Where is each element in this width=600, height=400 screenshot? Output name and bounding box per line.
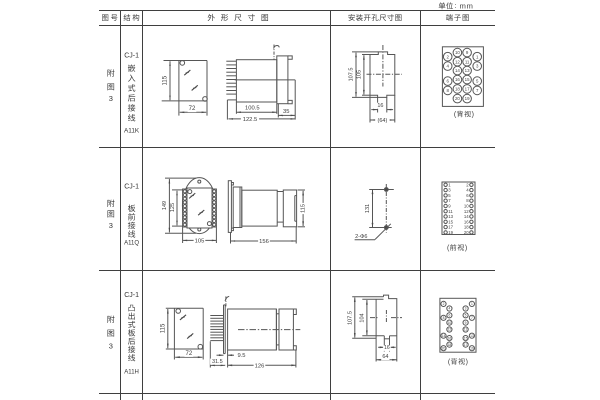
svg-text:105: 105 <box>195 238 205 244</box>
svg-text:72: 72 <box>189 106 196 112</box>
svg-text:13: 13 <box>465 68 470 73</box>
svg-text:3: 3 <box>448 188 451 193</box>
svg-text:14: 14 <box>464 214 469 219</box>
svg-text:CJ-1: CJ-1 <box>124 292 139 299</box>
svg-text:3: 3 <box>109 94 113 103</box>
svg-text:3: 3 <box>109 341 113 350</box>
svg-text:2: 2 <box>443 302 445 306</box>
svg-text:A11Q: A11Q <box>124 241 139 247</box>
svg-text:10: 10 <box>464 204 469 209</box>
svg-text:12: 12 <box>448 328 452 332</box>
svg-text:126: 126 <box>255 363 265 369</box>
svg-text:17: 17 <box>464 343 468 347</box>
svg-text:(64): (64) <box>378 118 388 124</box>
svg-text:64: 64 <box>382 354 388 360</box>
svg-text:107.5: 107.5 <box>349 68 355 82</box>
svg-text:2-Φ6: 2-Φ6 <box>355 234 367 240</box>
svg-text:131: 131 <box>365 204 371 213</box>
svg-text:3: 3 <box>465 307 467 311</box>
svg-text:9: 9 <box>465 321 467 325</box>
svg-text:6: 6 <box>446 79 449 84</box>
svg-text::: : <box>454 3 456 10</box>
svg-text:(: ( <box>448 359 451 366</box>
svg-text:8: 8 <box>446 88 449 93</box>
svg-text:115: 115 <box>300 204 306 213</box>
svg-text:149: 149 <box>162 201 168 210</box>
svg-text:): ) <box>472 112 474 119</box>
svg-text:122.5: 122.5 <box>243 117 258 123</box>
svg-text:2: 2 <box>466 182 469 187</box>
svg-text:31.5: 31.5 <box>212 359 223 365</box>
svg-text:100.5: 100.5 <box>245 105 260 111</box>
svg-text:19: 19 <box>470 346 474 350</box>
svg-text:156: 156 <box>259 239 269 245</box>
svg-text:16: 16 <box>464 219 469 224</box>
svg-text:16: 16 <box>448 336 452 340</box>
svg-text:72: 72 <box>186 351 193 357</box>
svg-text:4: 4 <box>446 64 449 69</box>
svg-text:(: ( <box>454 112 457 119</box>
svg-text:13: 13 <box>470 334 474 338</box>
svg-text:35: 35 <box>283 109 289 115</box>
svg-text:3: 3 <box>109 221 113 230</box>
svg-text:17: 17 <box>465 87 470 92</box>
svg-text:7: 7 <box>476 88 479 93</box>
svg-text:115: 115 <box>162 75 168 85</box>
svg-text:1: 1 <box>471 302 473 306</box>
svg-text:11: 11 <box>464 328 468 332</box>
svg-text:1: 1 <box>448 182 451 187</box>
svg-text:5: 5 <box>465 314 467 318</box>
svg-text:18: 18 <box>455 87 460 92</box>
svg-text:4: 4 <box>466 188 469 193</box>
svg-text:16: 16 <box>384 345 390 351</box>
svg-text:14: 14 <box>455 68 460 73</box>
svg-text:20: 20 <box>455 96 460 101</box>
svg-text:7: 7 <box>448 198 451 203</box>
svg-text:10: 10 <box>448 321 452 325</box>
svg-text:17: 17 <box>448 225 453 230</box>
svg-text:20: 20 <box>442 346 446 350</box>
svg-text:14: 14 <box>442 334 446 338</box>
svg-text:104: 104 <box>360 313 366 322</box>
svg-text:105: 105 <box>357 70 363 79</box>
svg-text:19: 19 <box>448 230 453 235</box>
svg-text:18: 18 <box>448 343 452 347</box>
svg-text:A11K: A11K <box>124 127 140 134</box>
svg-text:16: 16 <box>455 77 460 82</box>
svg-text:CJ-1: CJ-1 <box>124 53 139 60</box>
svg-text:2: 2 <box>446 54 449 59</box>
svg-text:107.5: 107.5 <box>347 311 353 325</box>
svg-text:12: 12 <box>455 59 460 64</box>
svg-text:11: 11 <box>465 59 470 64</box>
svg-text:4: 4 <box>448 307 450 311</box>
svg-text:6: 6 <box>466 193 469 198</box>
svg-text:15: 15 <box>464 336 468 340</box>
svg-text:(: ( <box>447 245 450 252</box>
svg-text:A11H: A11H <box>124 370 139 376</box>
svg-text:CJ-1: CJ-1 <box>124 184 139 191</box>
svg-text:): ) <box>466 359 468 366</box>
svg-text:9.5: 9.5 <box>237 353 245 359</box>
svg-text:6: 6 <box>448 314 450 318</box>
svg-text:15: 15 <box>465 77 470 82</box>
svg-text:10: 10 <box>455 50 460 55</box>
svg-text:8: 8 <box>443 316 445 320</box>
svg-text:5: 5 <box>476 79 479 84</box>
svg-text:19: 19 <box>465 96 470 101</box>
svg-text:20: 20 <box>464 230 469 235</box>
svg-text:9: 9 <box>466 50 469 55</box>
svg-text:5: 5 <box>448 193 451 198</box>
svg-text:16: 16 <box>377 103 383 109</box>
svg-text:9: 9 <box>448 204 451 209</box>
svg-text:7: 7 <box>471 316 473 320</box>
svg-text:1: 1 <box>476 54 479 59</box>
svg-text:13: 13 <box>448 214 453 219</box>
svg-text:8: 8 <box>466 198 469 203</box>
svg-text:15: 15 <box>448 219 453 224</box>
svg-text:18: 18 <box>464 225 469 230</box>
svg-text:): ) <box>465 245 467 252</box>
svg-text:125: 125 <box>170 203 176 212</box>
svg-text:115: 115 <box>160 323 166 333</box>
svg-text:mm: mm <box>460 2 474 11</box>
svg-text:3: 3 <box>476 64 479 69</box>
